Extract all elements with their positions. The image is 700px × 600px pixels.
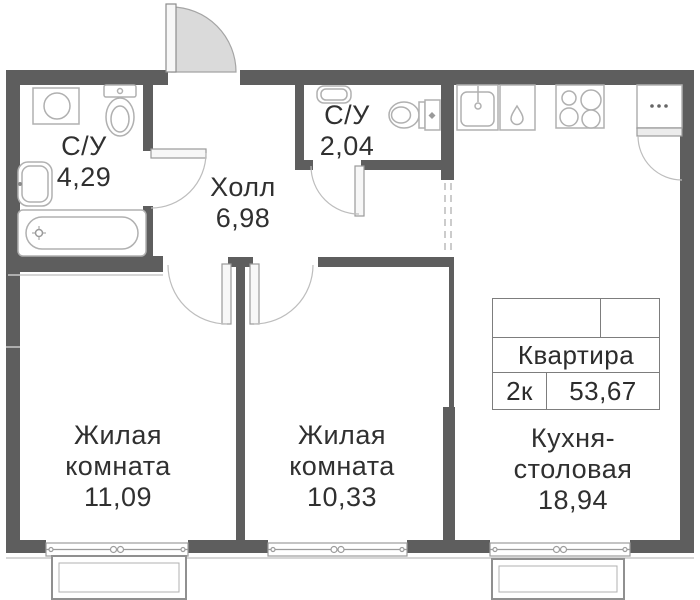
apartment-rooms-count: 2к [493,373,547,409]
wall-bottom-4 [630,540,694,553]
kitchen-sink-icon [457,85,498,130]
apartment-total-area: 53,67 [547,373,659,409]
kitchen-fixtures [457,85,682,180]
room-area: 2,04 [277,131,417,162]
room-name: С/У [14,131,154,162]
balconies [52,556,624,599]
room-name: Жилая комната [267,420,417,482]
stove-icon [556,85,604,128]
toilet-icon [104,85,136,136]
wall-bottom-1 [6,540,46,553]
room-name: Кухня-столовая [498,423,648,485]
window-icon [490,543,630,556]
wall-room2-kitchen-thin [449,267,454,407]
apartment-title: Квартира [518,340,634,371]
door-living-room-1 [168,264,231,324]
room-area: 10,33 [267,482,417,513]
room-label-hall: Холл 6,98 [173,172,313,234]
wall-bath2-kitchen-pier [441,85,454,180]
wall-hall-bottom-right [318,257,454,267]
room-label-kitchen-dining: Кухня-столовая 18,94 [498,423,648,516]
room-label-bathroom-1: С/У 4,29 [14,131,154,193]
room-name: С/У [277,100,417,131]
wall-right [680,70,694,553]
room-label-living-room-1: Жилая комната 11,09 [43,420,193,513]
balcony-icon [52,556,186,599]
entrance-door-icon [166,4,236,72]
wall-room2-kitchen-thick [443,407,455,543]
room-area: 6,98 [173,203,313,234]
apartment-info-table: Квартира 2к 53,67 [492,298,660,410]
dashed-opening [445,183,451,255]
washing-machine-icon [33,88,79,124]
room-area: 4,29 [14,162,154,193]
wall-top-right [240,70,694,85]
window-icon [268,543,407,556]
door-living-room-2 [250,264,313,324]
window-icon [46,543,188,556]
info-table-header-row [493,299,659,337]
info-table-empty-cell [493,299,601,337]
balcony-icon [492,559,624,599]
windows [46,543,630,556]
room-area: 18,94 [498,485,648,516]
floor-plan: С/У 4,29 С/У 2,04 Холл 6,98 Жилая комнат… [0,0,700,600]
room-name: Холл [173,172,313,203]
info-table-empty-cell [601,299,659,337]
info-table-title-row: Квартира [493,337,659,372]
wall-top-left [6,70,168,85]
info-table-values-row: 2к 53,67 [493,372,659,409]
bathtub-icon [18,210,146,256]
room-area: 11,09 [43,482,193,513]
room-name: Жилая комната [43,420,193,482]
wall-bottom-2 [188,540,268,553]
room-label-bathroom-2: С/У 2,04 [277,100,417,162]
dishwasher-icon [500,85,535,130]
fridge-icon [637,85,682,180]
wall-bath1-bottom [6,256,163,272]
wall-between-rooms [236,262,245,545]
room-label-living-room-2: Жилая комната 10,33 [267,420,417,513]
door-bathroom-2 [311,166,364,216]
